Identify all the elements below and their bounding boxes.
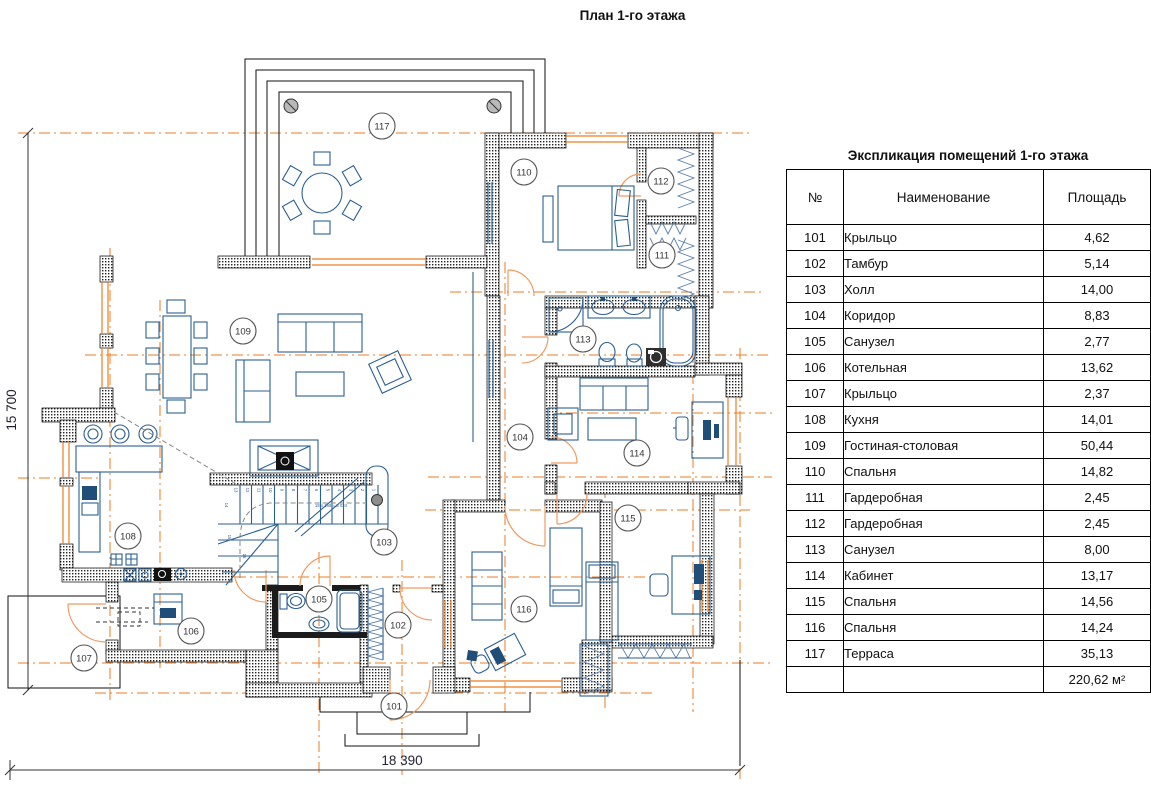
room-number-cell: 104 (787, 303, 844, 329)
schedule-row: 116 Спальня 14,24 (787, 615, 1151, 641)
svg-text:112: 112 (653, 177, 668, 188)
svg-text:105: 105 (311, 595, 327, 606)
room-number-cell: 102 (787, 251, 844, 277)
room-number-cell: 107 (787, 381, 844, 407)
room-number-cell: 103 (787, 277, 844, 303)
door-swings (68, 174, 641, 720)
room-name-cell: Холл (844, 277, 1044, 303)
room-area-cell: 8,83 (1044, 303, 1151, 329)
kitchen-furniture (76, 425, 187, 581)
room-name-cell: Спальня (844, 589, 1044, 615)
room-area-cell: 35,13 (1044, 641, 1151, 667)
room-name-cell (844, 667, 1044, 693)
dimension-bottom-value: 18 390 (381, 753, 422, 768)
room-marker-104: 104 (507, 424, 533, 450)
svg-text:108: 108 (120, 532, 136, 543)
grid-axes (18, 133, 772, 782)
room-number-cell: 108 (787, 407, 844, 433)
room-marker-103: 103 (371, 529, 397, 555)
svg-text:101: 101 (386, 702, 402, 713)
terrace-columns (284, 99, 501, 113)
room-number-cell: 106 (787, 355, 844, 381)
schedule-row: 104 Коридор 8,83 (787, 303, 1151, 329)
room-area-cell: 13,62 (1044, 355, 1151, 381)
schedule-row: 101 Крыльцо 4,62 (787, 225, 1151, 251)
room-area-cell: 14,01 (1044, 407, 1151, 433)
stair-note: 18 x 168 = 3 024 (315, 503, 348, 508)
room-name-cell: Тамбур (844, 251, 1044, 277)
room-area-cell: 14,56 (1044, 589, 1151, 615)
schedule-row: 115 Спальня 14,56 (787, 589, 1151, 615)
svg-text:115: 115 (620, 514, 635, 525)
room-name-cell: Санузел (844, 537, 1044, 563)
schedule-row: 106 Котельная 13,62 (787, 355, 1151, 381)
room-marker-101: 101 (381, 693, 407, 719)
room-marker-115: 115 (615, 505, 641, 531)
schedule-header-row: № Наименование Площадь (787, 170, 1151, 225)
svg-text:8: 8 (291, 489, 296, 492)
room-markers: 1011021031041051061071081091101111121131… (71, 113, 675, 719)
schedule-row: 111 Гардеробная 2,45 (787, 485, 1151, 511)
svg-text:6: 6 (314, 489, 319, 492)
svg-text:111: 111 (655, 251, 669, 262)
room-area-cell: 8,00 (1044, 537, 1151, 563)
total-area-cell: 220,62 м² (1044, 667, 1151, 693)
room-area-cell: 14,24 (1044, 615, 1151, 641)
room-name-cell: Крыльцо (844, 381, 1044, 407)
terrace-steps (245, 59, 545, 256)
schedule-row: 112 Гардеробная 2,45 (787, 511, 1151, 537)
svg-text:9: 9 (280, 489, 285, 492)
room-marker-105: 105 (306, 586, 332, 612)
svg-text:114: 114 (629, 449, 644, 460)
open-plan-divider (114, 412, 238, 485)
room-marker-111: 111 (649, 242, 675, 268)
room-marker-113: 113 (570, 326, 596, 352)
schedule-row: 103 Холл 14,00 (787, 277, 1151, 303)
schedule-row: 108 Кухня 14,01 (787, 407, 1151, 433)
svg-text:11: 11 (257, 488, 262, 493)
svg-text:117: 117 (374, 122, 389, 133)
room-marker-107: 107 (71, 645, 97, 671)
room-marker-106: 106 (178, 618, 204, 644)
room-marker-109: 109 (230, 318, 256, 344)
room-name-cell: Гостиная-столовая (844, 433, 1044, 459)
schedule-row: 113 Санузел 8,00 (787, 537, 1151, 563)
svg-text:103: 103 (376, 538, 392, 549)
room-area-cell: 2,45 (1044, 485, 1151, 511)
room-name-cell: Кухня (844, 407, 1044, 433)
room-number-cell: 109 (787, 433, 844, 459)
svg-text:4: 4 (337, 489, 342, 492)
room-name-cell: Гардеробная (844, 485, 1044, 511)
room-name-cell: Спальня (844, 615, 1044, 641)
col-area: Площадь (1044, 170, 1151, 225)
room-area-cell: 5,14 (1044, 251, 1151, 277)
room-name-cell: Санузел (844, 329, 1044, 355)
dimension-left-value: 15 700 (4, 389, 19, 430)
room-number-cell: 117 (787, 641, 844, 667)
svg-text:13: 13 (234, 488, 239, 493)
dining-set (146, 300, 207, 413)
room-area-cell: 50,44 (1044, 433, 1151, 459)
room-number-cell: 115 (787, 589, 844, 615)
svg-text:104: 104 (512, 433, 528, 444)
room-number-cell: 116 (787, 615, 844, 641)
svg-text:102: 102 (390, 621, 406, 632)
walls (42, 133, 742, 697)
room-number-cell: 105 (787, 329, 844, 355)
room-name-cell: Спальня (844, 459, 1044, 485)
room-marker-112: 112 (648, 168, 674, 194)
schedule-row: 105 Санузел 2,77 (787, 329, 1151, 355)
schedule-row: 117 Терраса 35,13 (787, 641, 1151, 667)
living-room-furniture (236, 272, 473, 442)
dimension-bottom: 18 390 (5, 753, 745, 780)
svg-text:2: 2 (360, 489, 365, 492)
room-number-cell: 101 (787, 225, 844, 251)
svg-text:1: 1 (372, 489, 377, 492)
schedule-row: 114 Кабинет 13,17 (787, 563, 1151, 589)
svg-text:14: 14 (224, 503, 229, 508)
room-number-cell: 110 (787, 459, 844, 485)
svg-text:106: 106 (183, 627, 199, 638)
room-name-cell: Крыльцо (844, 225, 1044, 251)
room-number-cell: 112 (787, 511, 844, 537)
room-number-cell: 113 (787, 537, 844, 563)
room-marker-102: 102 (385, 612, 411, 638)
col-number: № (787, 170, 844, 225)
room-marker-110: 110 (511, 159, 537, 185)
room-area-cell: 14,00 (1044, 277, 1151, 303)
room-name-cell: Терраса (844, 641, 1044, 667)
room-area-cell: 13,17 (1044, 563, 1151, 589)
room-marker-117: 117 (369, 113, 395, 139)
schedule-row: 110 Спальня 14,82 (787, 459, 1151, 485)
room-area-cell: 2,37 (1044, 381, 1151, 407)
schedule-table: № Наименование Площадь 101 Крыльцо 4,62 … (786, 169, 1151, 693)
schedule-total-row: 220,62 м² (787, 667, 1151, 693)
schedule-row: 109 Гостиная-столовая 50,44 (787, 433, 1151, 459)
floor-plan-page: План 1-го этажа (0, 0, 1151, 805)
svg-text:110: 110 (516, 168, 531, 179)
room-name-cell: Гардеробная (844, 511, 1044, 537)
room-area-cell: 2,45 (1044, 511, 1151, 537)
floor-plan-drawing: 18 x 168 = 3 024 12345678910111213141516… (0, 0, 780, 805)
schedule-row: 107 Крыльцо 2,37 (787, 381, 1151, 407)
room-name-cell: Коридор (844, 303, 1044, 329)
svg-text:12: 12 (245, 488, 250, 493)
svg-text:116: 116 (516, 605, 531, 616)
room-number-cell: 114 (787, 563, 844, 589)
terrace-furniture (282, 152, 361, 234)
entry-closet (368, 588, 383, 660)
room-area-cell: 14,82 (1044, 459, 1151, 485)
svg-text:5: 5 (326, 489, 331, 492)
schedule-title: Экспликация помещений 1-го этажа (786, 148, 1150, 163)
svg-text:107: 107 (76, 654, 92, 665)
schedule-row: 102 Тамбур 5,14 (787, 251, 1151, 277)
col-name: Наименование (844, 170, 1044, 225)
windows (63, 136, 736, 687)
svg-text:7: 7 (303, 489, 308, 492)
room-marker-108: 108 (115, 523, 141, 549)
room-number-cell (787, 667, 844, 693)
room-marker-114: 114 (624, 440, 650, 466)
room-area-cell: 2,77 (1044, 329, 1151, 355)
room-number-cell: 111 (787, 485, 844, 511)
room-marker-116: 116 (511, 596, 537, 622)
svg-text:16: 16 (242, 554, 247, 559)
room-name-cell: Котельная (844, 355, 1044, 381)
svg-text:10: 10 (268, 488, 273, 493)
fireplace (250, 440, 318, 476)
room-area-cell: 4,62 (1044, 225, 1151, 251)
svg-text:109: 109 (235, 327, 251, 338)
svg-text:113: 113 (575, 335, 590, 346)
room-name-cell: Кабинет (844, 563, 1044, 589)
svg-text:15: 15 (227, 535, 232, 540)
room-schedule: Экспликация помещений 1-го этажа № Наиме… (786, 148, 1150, 693)
